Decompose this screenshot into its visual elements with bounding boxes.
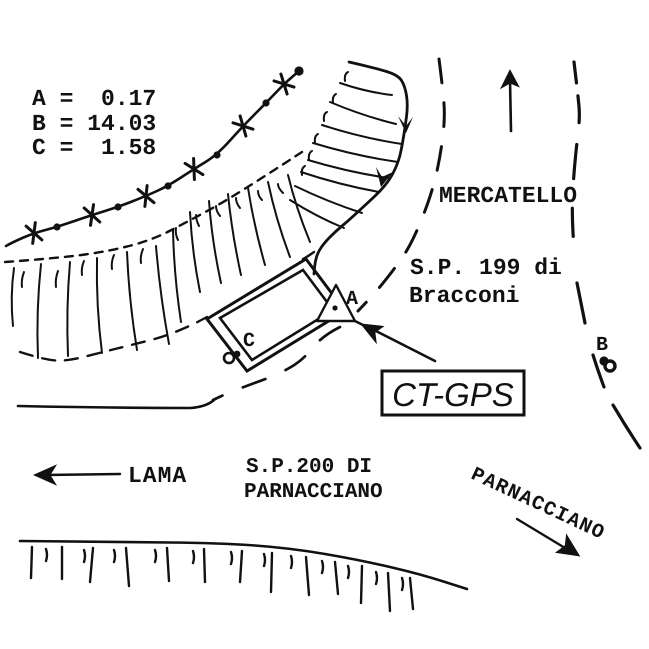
svg-text:A: A xyxy=(346,288,358,311)
svg-text:Bracconi: Bracconi xyxy=(409,283,519,309)
svg-text:A = 0.17: A = 0.17 xyxy=(32,86,156,112)
svg-text:LAMA: LAMA xyxy=(128,463,187,489)
svg-text:MERCATELLO: MERCATELLO xyxy=(439,183,577,209)
svg-text:PARNACCIANO: PARNACCIANO xyxy=(244,481,383,504)
svg-text:S.P. 199 di: S.P. 199 di xyxy=(410,255,562,281)
svg-text:S.P.200 DI: S.P.200 DI xyxy=(246,456,372,479)
svg-text:B = 14.03: B = 14.03 xyxy=(32,111,156,137)
svg-text:CT-GPS: CT-GPS xyxy=(392,376,514,413)
svg-text:C: C xyxy=(243,330,255,353)
svg-text:B: B xyxy=(596,334,608,357)
svg-text:C = 1.58: C = 1.58 xyxy=(32,135,156,161)
